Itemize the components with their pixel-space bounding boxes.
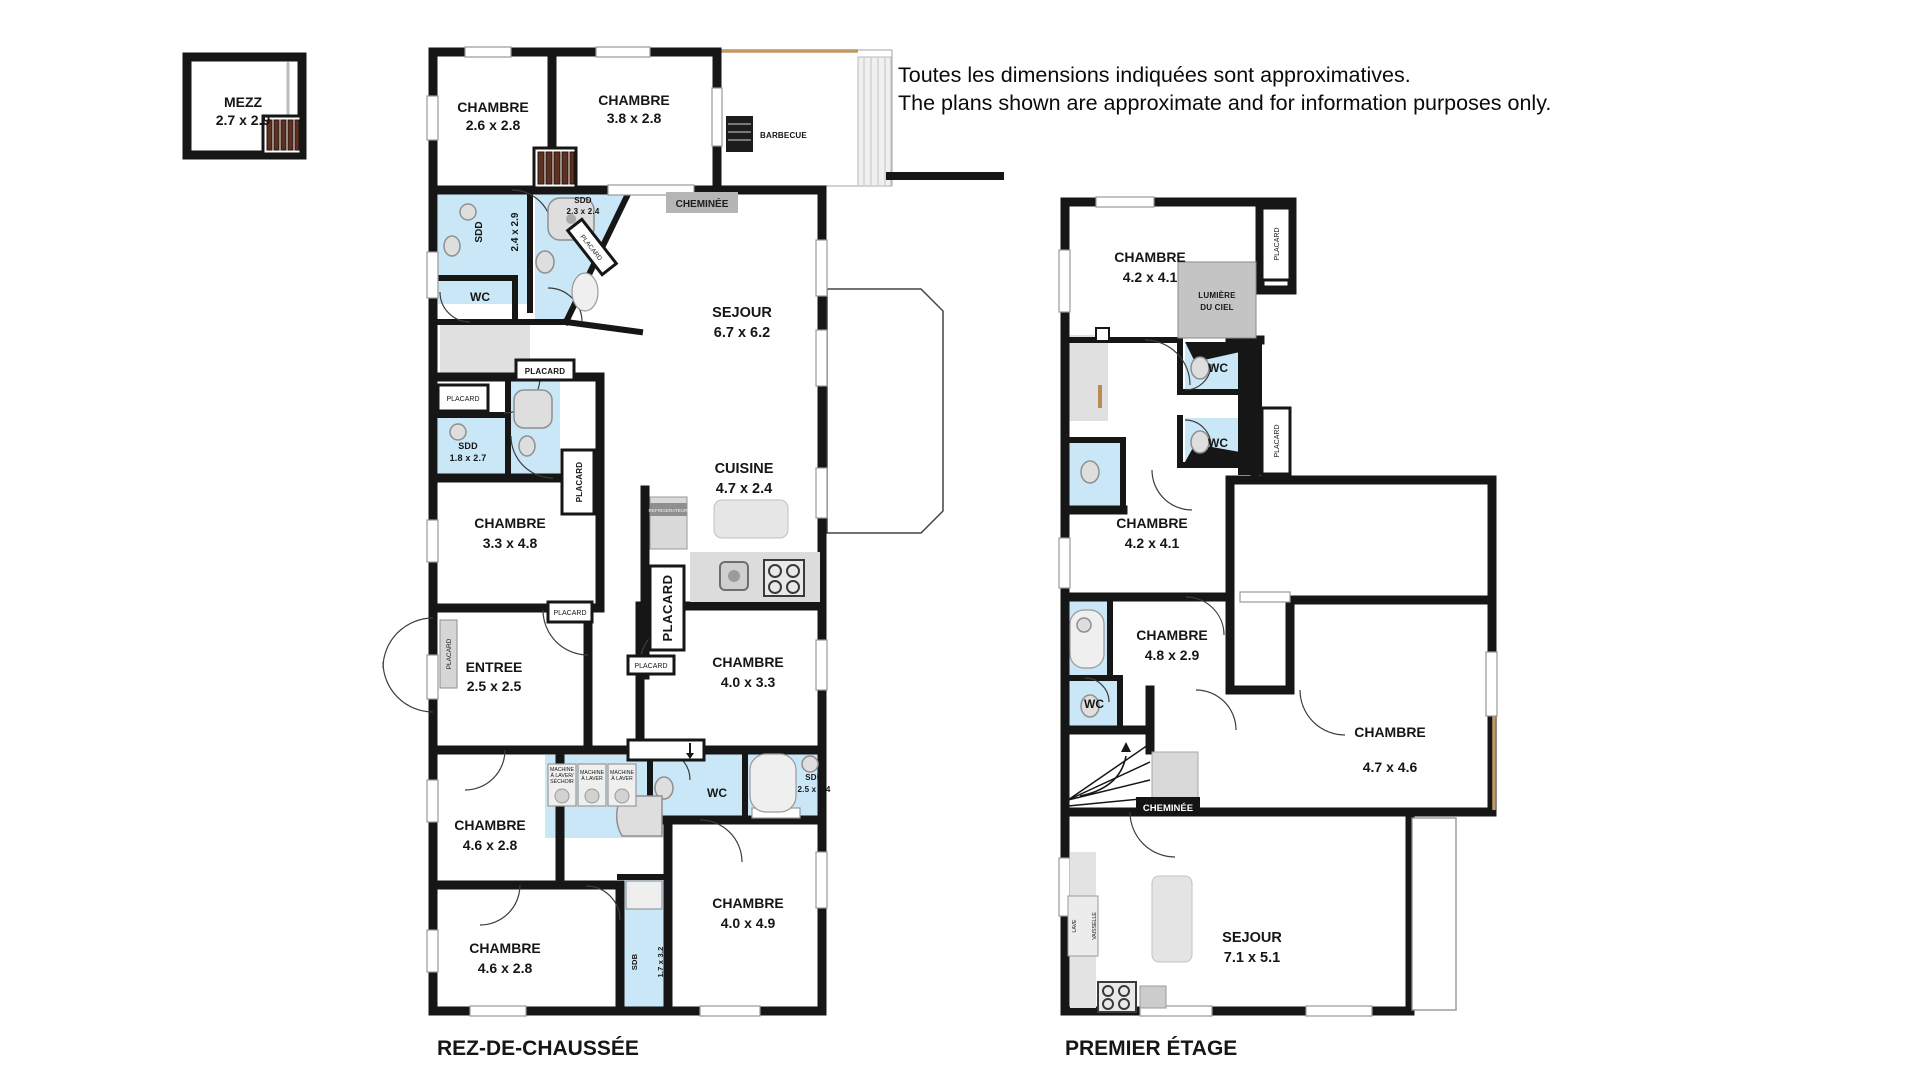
cheminee-label: CHEMINÉE: [1143, 803, 1193, 814]
room-label: SEJOUR: [712, 305, 772, 321]
room-dims: 4.6 x 2.8: [463, 837, 518, 853]
room-label: CHAMBRE: [469, 940, 541, 956]
island-1f: [1152, 876, 1192, 962]
placard-label: PLACARD: [575, 462, 584, 503]
room-dims: 2.5 x 1.4: [798, 785, 831, 794]
first-floor-plan: LAVE VAISSELLE PLACARD PLACARD LUMIÈRE D…: [1059, 197, 1497, 1016]
machine-label: SÉCHOIR: [550, 778, 574, 785]
dishwasher-label: VAISSELLE: [1092, 912, 1098, 940]
room-label: CHAMBRE: [598, 92, 670, 108]
room-dims: 4.0 x 4.9: [721, 915, 776, 931]
room-dims: 4.6 x 2.8: [478, 960, 533, 976]
barbecue-label: BARBECUE: [760, 131, 807, 140]
room-label: CUISINE: [715, 461, 774, 477]
placard-label: PLACARD: [1274, 424, 1281, 457]
room-label: CHAMBRE: [1116, 515, 1188, 531]
skylight: LUMIÈRE DU CIEL: [1178, 262, 1256, 338]
gray-panel: [1152, 752, 1198, 798]
shower-icon: [514, 390, 552, 428]
room-label: SDD: [474, 221, 485, 242]
room-label: ENTREE: [466, 659, 523, 675]
barbecue-icon: [726, 116, 753, 152]
balcony-outline: [1412, 818, 1456, 1010]
pool-outline: [827, 289, 943, 533]
room-label: CHAMBRE: [1354, 724, 1426, 740]
room-dims: 4.8 x 2.9: [1145, 647, 1200, 663]
balcony-wall-line: [886, 172, 1004, 180]
room-dims: 3.3 x 4.8: [483, 535, 538, 551]
machine-label: À LAVER: [611, 775, 633, 782]
sink-icon: [450, 424, 466, 440]
skylight-label: DU CIEL: [1200, 303, 1233, 312]
room-dims: 4.7 x 4.6: [1363, 759, 1418, 775]
room-label: CHAMBRE: [712, 895, 784, 911]
sink-icon: [1077, 618, 1091, 632]
placard-label: PLACARD: [634, 663, 667, 670]
room-dims: 7.1 x 5.1: [1224, 950, 1280, 966]
skylight-label: LUMIÈRE: [1198, 291, 1236, 300]
room-label: CHAMBRE: [1136, 627, 1208, 643]
room-label: CHAMBRE: [457, 99, 529, 115]
dishwasher-icon: LAVE VAISSELLE: [1068, 896, 1098, 956]
placard-label: PLACARD: [1274, 227, 1281, 260]
fridge-icon: REFRIGERATEUR: [649, 497, 689, 549]
wc-label: WC: [470, 290, 490, 304]
bidet-icon: [572, 273, 598, 311]
wc-label: WC: [1084, 697, 1104, 711]
room-dims: 4.7 x 2.4: [716, 481, 772, 497]
small-square: [1096, 328, 1109, 341]
room-label: CHAMBRE: [712, 654, 784, 670]
wc-wall-mass: [1238, 340, 1262, 475]
wc-label: WC: [707, 786, 727, 800]
first-floor-title: PREMIER ÉTAGE: [1065, 1037, 1237, 1060]
room-dims: 2.3 x 2.4: [567, 207, 600, 216]
room-label: SDB: [630, 953, 639, 970]
room-label: CHAMBRE: [474, 515, 546, 531]
machine-label: À LAVER/: [551, 772, 575, 779]
hatch-arrow-box: [628, 740, 704, 760]
ground-floor-plan: REFRIGERATEUR MACHINE À LAVER/ SÉCHOIR M…: [383, 47, 831, 1016]
disclaimer-text: Toutes les dimensions indiquées sont app…: [898, 63, 1551, 115]
room-dims: 3.8 x 2.8: [607, 110, 662, 126]
toilet-icon: [1191, 431, 1209, 453]
room-label: SDB: [805, 773, 823, 782]
shower-icon: [626, 881, 662, 909]
bathtub-icon: [750, 754, 796, 812]
room-dims: 4.0 x 3.3: [721, 674, 776, 690]
toilet-icon: [444, 236, 460, 256]
fridge-label: REFRIGERATEUR: [649, 508, 689, 513]
room-dims: 1.7 x 3.2: [656, 947, 665, 978]
toilet-icon: [1191, 357, 1209, 379]
disclaimer-line-en: The plans shown are approximate and for …: [898, 91, 1551, 115]
dishwasher-label: LAVE: [1072, 919, 1078, 932]
machine-label: À LAVER: [581, 775, 603, 782]
toilet-icon: [1081, 461, 1099, 483]
room-label: SDD: [458, 441, 478, 451]
room-dims: 4.2 x 4.1: [1125, 535, 1180, 551]
washing-machines: MACHINE À LAVER/ SÉCHOIR MACHINE À LAVER…: [548, 764, 636, 806]
placards-first-floor: PLACARD PLACARD: [1262, 208, 1290, 474]
floorplan-drawing: Toutes les dimensions indiquées sont app…: [0, 0, 1920, 1080]
sink-icon: [460, 204, 476, 220]
disclaimer-line-fr: Toutes les dimensions indiquées sont app…: [898, 63, 1411, 87]
cheminee-ground: CHEMINÉE: [666, 192, 738, 213]
placard-label: PLACARD: [553, 610, 586, 617]
wc-label: WC: [1208, 361, 1228, 375]
mezz-label: MEZZ: [224, 94, 263, 110]
room-dims: 1.8 x 2.7: [450, 453, 487, 463]
placard-label: PLACARD: [446, 396, 479, 403]
room-label: SDD: [574, 196, 592, 205]
room-dims: 2.4 x 2.9: [510, 212, 521, 251]
mezzanine-plan: MEZZ 2.7 x 2.9: [187, 57, 302, 155]
toilet-icon: [536, 251, 554, 273]
cheminee-first: CHEMINÉE: [1136, 797, 1200, 816]
placard-label: PLACARD: [446, 638, 453, 669]
room-label: SEJOUR: [1222, 930, 1282, 946]
toilet-icon: [519, 436, 535, 456]
kitchen-island: [714, 500, 788, 538]
room-dims: 4.2 x 4.1: [1123, 269, 1178, 285]
deck-boards: [858, 57, 891, 186]
sink-icon: [802, 756, 818, 772]
room-dims: 2.6 x 2.8: [466, 117, 521, 133]
room-dims: 2.5 x 2.5: [467, 678, 522, 694]
ground-floor-title: REZ-DE-CHAUSSÉE: [437, 1037, 639, 1060]
room-label: CHAMBRE: [454, 817, 526, 833]
stove-icon-1f: [1098, 982, 1166, 1012]
room-label: CHAMBRE: [1114, 249, 1186, 265]
stove-icon: [764, 560, 804, 596]
placard-label: PLACARD: [660, 574, 675, 641]
placard-label: PLACARD: [525, 367, 566, 376]
mezz-dims: 2.7 x 2.9: [216, 112, 271, 128]
cheminee-label: CHEMINÉE: [676, 197, 729, 210]
hall-gray-1f: [1068, 335, 1108, 421]
floorplan-page: Toutes les dimensions indiquées sont app…: [0, 0, 1920, 1080]
wc-label: WC: [1208, 436, 1228, 450]
room-dims: 6.7 x 6.2: [714, 325, 770, 341]
stairs-icon-ground: [534, 148, 576, 188]
